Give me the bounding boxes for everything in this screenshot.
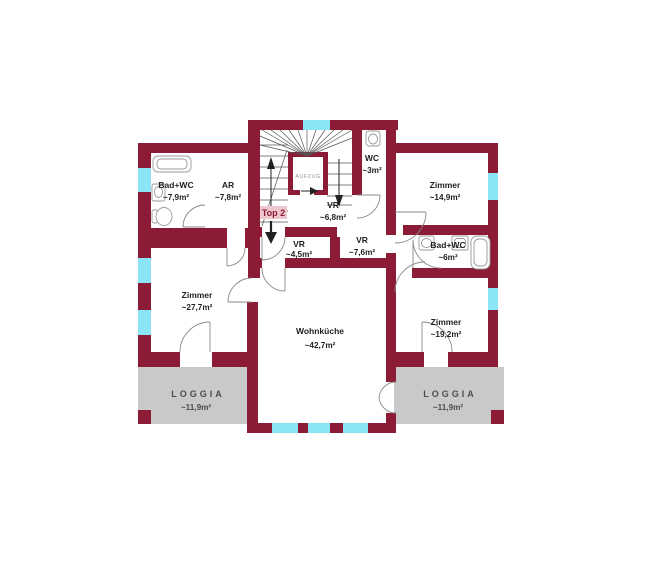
toilet-bowl xyxy=(156,208,172,226)
room-name: VR xyxy=(356,235,368,245)
wall-segment xyxy=(258,227,262,237)
loggia-left-pillar xyxy=(138,410,151,424)
window xyxy=(308,423,330,433)
room-area: ~42,7m² xyxy=(305,341,336,350)
room-area: ~27,7m² xyxy=(182,303,213,312)
room-area: ~6,8m² xyxy=(320,213,346,222)
window xyxy=(138,310,151,335)
unit-badge-label: Top 2 xyxy=(262,208,285,218)
room-area: ~4,5m² xyxy=(286,250,312,259)
room-name: AR xyxy=(222,180,234,190)
room-area: ~7,8m² xyxy=(215,193,241,202)
bathtub-inner xyxy=(474,239,487,266)
room-name: LOGGIA xyxy=(171,389,225,399)
window xyxy=(303,120,330,130)
floorplan-page: Bad+WC ~7,9m² AR ~7,8m² WC ~3m² Zimmer ~… xyxy=(0,0,650,576)
wall-segment xyxy=(248,120,260,278)
room-area: ~19,2m² xyxy=(431,330,462,339)
wall-segment xyxy=(285,227,337,237)
room-area: ~11,9m² xyxy=(181,403,212,412)
window xyxy=(272,423,298,433)
sink-basin xyxy=(369,134,378,144)
window xyxy=(488,173,498,200)
bathtub-inner xyxy=(157,159,187,169)
wall-segment xyxy=(212,352,257,367)
room-name: Zimmer xyxy=(430,180,461,190)
wall-segment xyxy=(258,258,262,268)
wall-segment xyxy=(352,130,362,195)
room-name: WC xyxy=(365,153,379,163)
room-name: Bad+WC xyxy=(430,240,465,250)
room-area: ~7,6m² xyxy=(349,248,375,257)
room-area: ~3m² xyxy=(362,166,382,175)
wall-segment xyxy=(390,143,498,153)
wall-segment xyxy=(448,352,498,367)
window xyxy=(138,258,151,283)
wall-segment xyxy=(138,228,227,248)
wall-segment xyxy=(386,120,396,235)
loggia-right-pillar xyxy=(491,410,504,424)
unit-badge: Top 2 xyxy=(260,206,287,219)
wall-segment xyxy=(138,352,180,367)
window xyxy=(488,288,498,310)
room-name: VR xyxy=(327,200,339,210)
room-name: Zimmer xyxy=(182,290,213,300)
room-area: ~7,9m² xyxy=(163,193,189,202)
wall-segment xyxy=(285,258,395,268)
window xyxy=(138,168,151,192)
room-area: ~11,9m² xyxy=(433,403,464,412)
floorplan-drawing: Bad+WC ~7,9m² AR ~7,8m² WC ~3m² Zimmer ~… xyxy=(0,0,650,576)
room-name: Wohnküche xyxy=(296,326,344,336)
wall-segment xyxy=(247,302,258,433)
wall-segment xyxy=(138,143,250,153)
window xyxy=(343,423,368,433)
wall-segment xyxy=(412,268,498,278)
room-area: ~6m² xyxy=(438,253,458,262)
room-area: ~14,9m² xyxy=(430,193,461,202)
wall-segment xyxy=(245,228,260,248)
room-name: VR xyxy=(293,239,305,249)
room-name: LOGGIA xyxy=(423,389,477,399)
wall-segment xyxy=(393,352,424,367)
room-name: Bad+WC xyxy=(158,180,193,190)
elevator-label: AUFZUG xyxy=(295,174,320,180)
page-background xyxy=(0,0,650,576)
room-name: Zimmer xyxy=(431,317,462,327)
